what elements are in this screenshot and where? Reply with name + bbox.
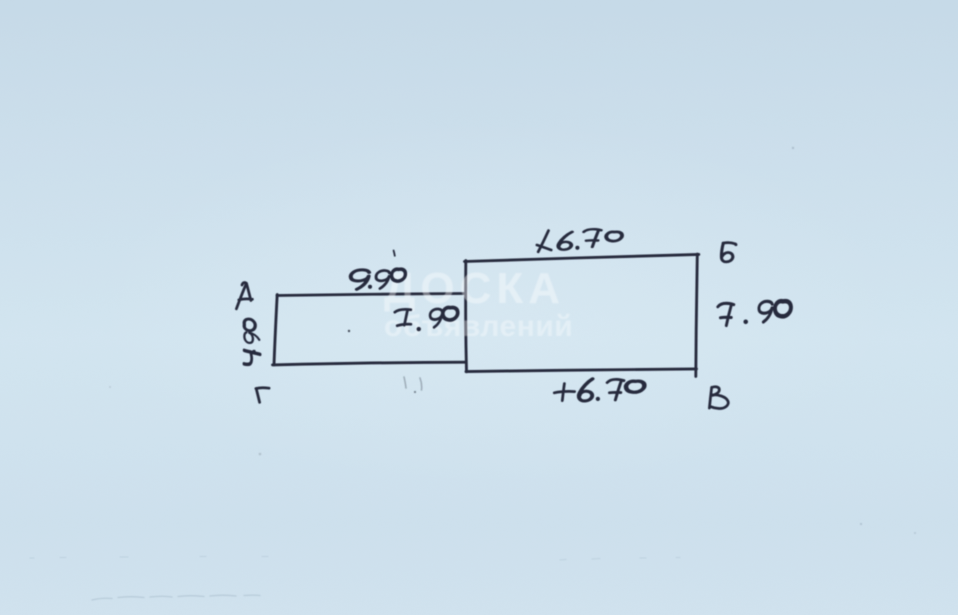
svg-text:ДОСКА: ДОСКА [384, 264, 565, 313]
svg-text:объявлений: объявлений [384, 310, 573, 343]
